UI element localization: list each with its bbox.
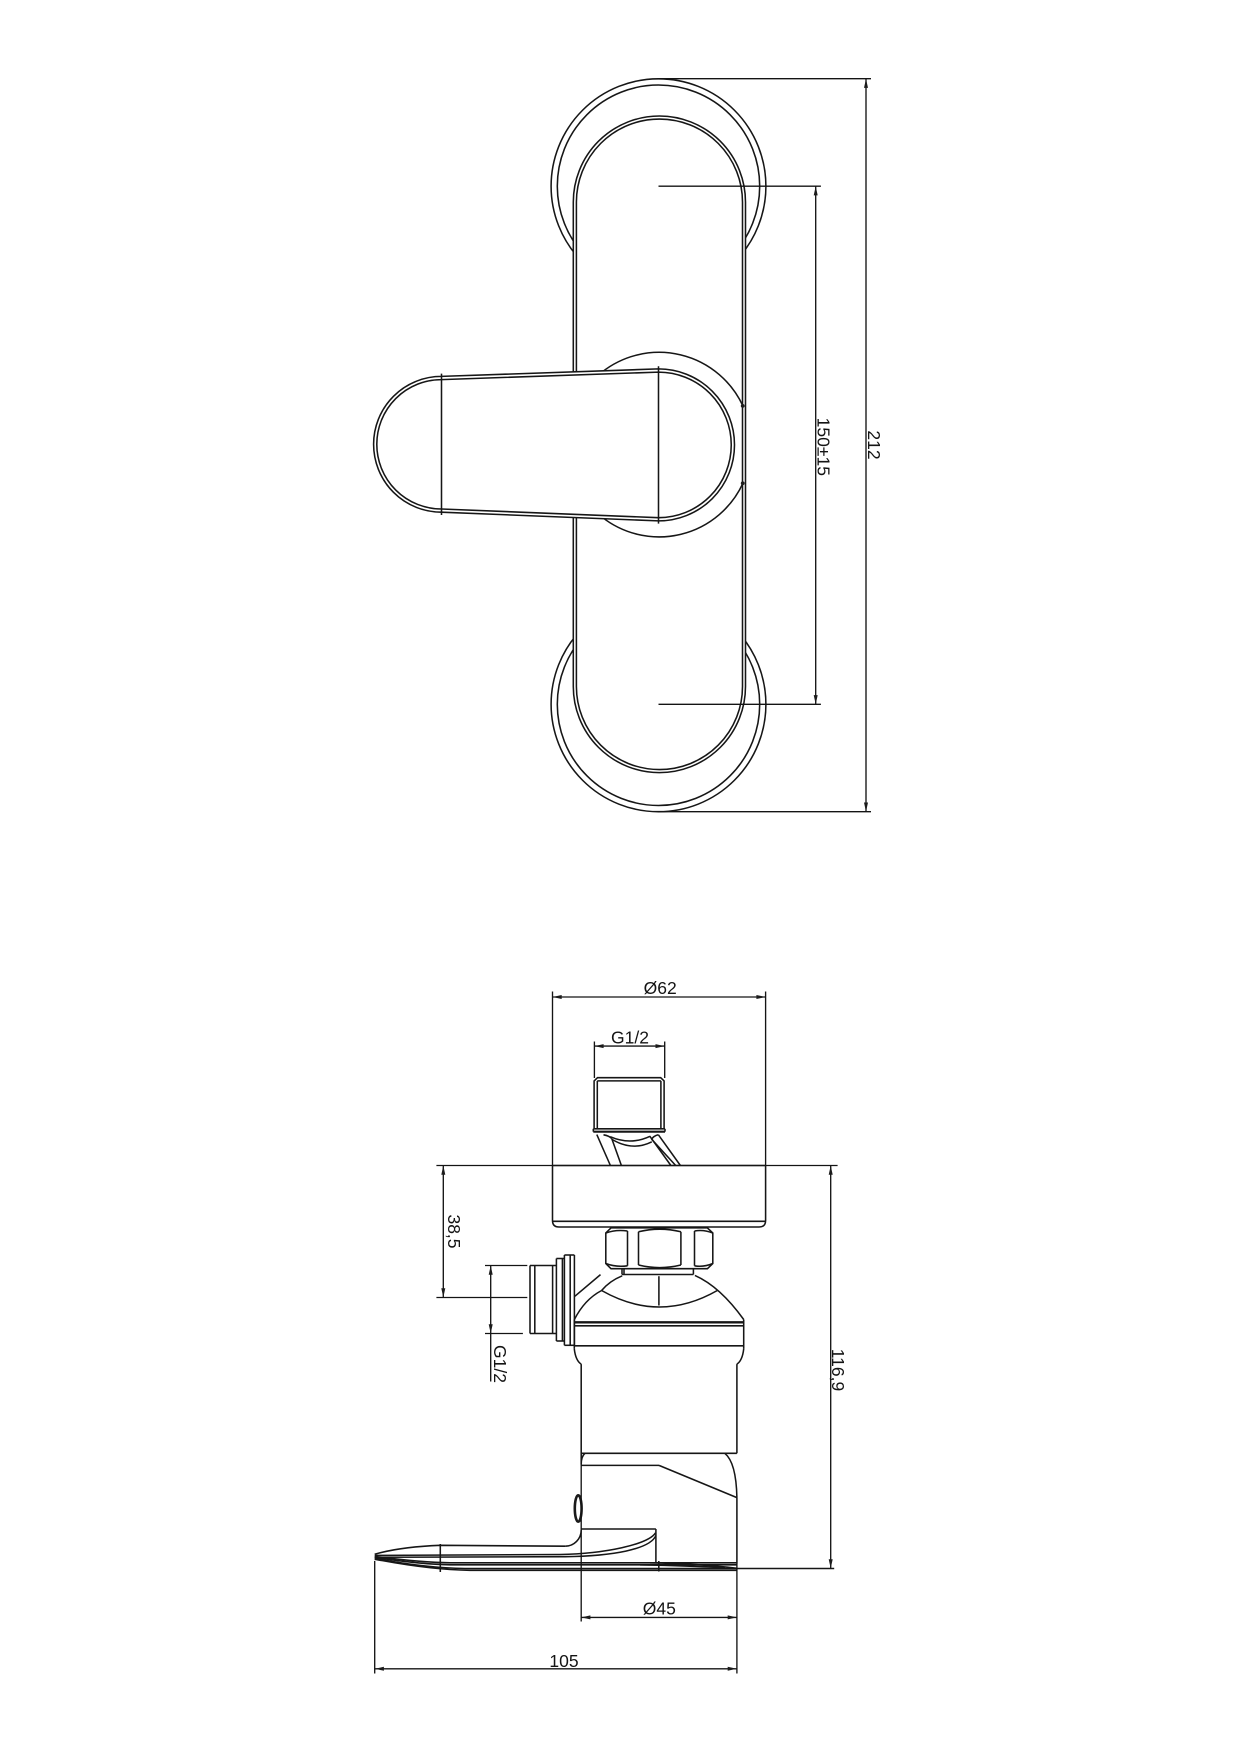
svg-text:105: 105: [549, 1651, 578, 1671]
svg-text:150±15: 150±15: [814, 418, 834, 476]
svg-text:G1/2: G1/2: [611, 1028, 649, 1048]
svg-text:212: 212: [864, 430, 884, 459]
svg-text:G1/2: G1/2: [490, 1345, 510, 1383]
svg-text:Ø62: Ø62: [644, 978, 677, 998]
svg-text:Ø45: Ø45: [643, 1599, 676, 1619]
svg-text:116,9: 116,9: [828, 1349, 848, 1392]
svg-text:38,5: 38,5: [444, 1214, 464, 1248]
